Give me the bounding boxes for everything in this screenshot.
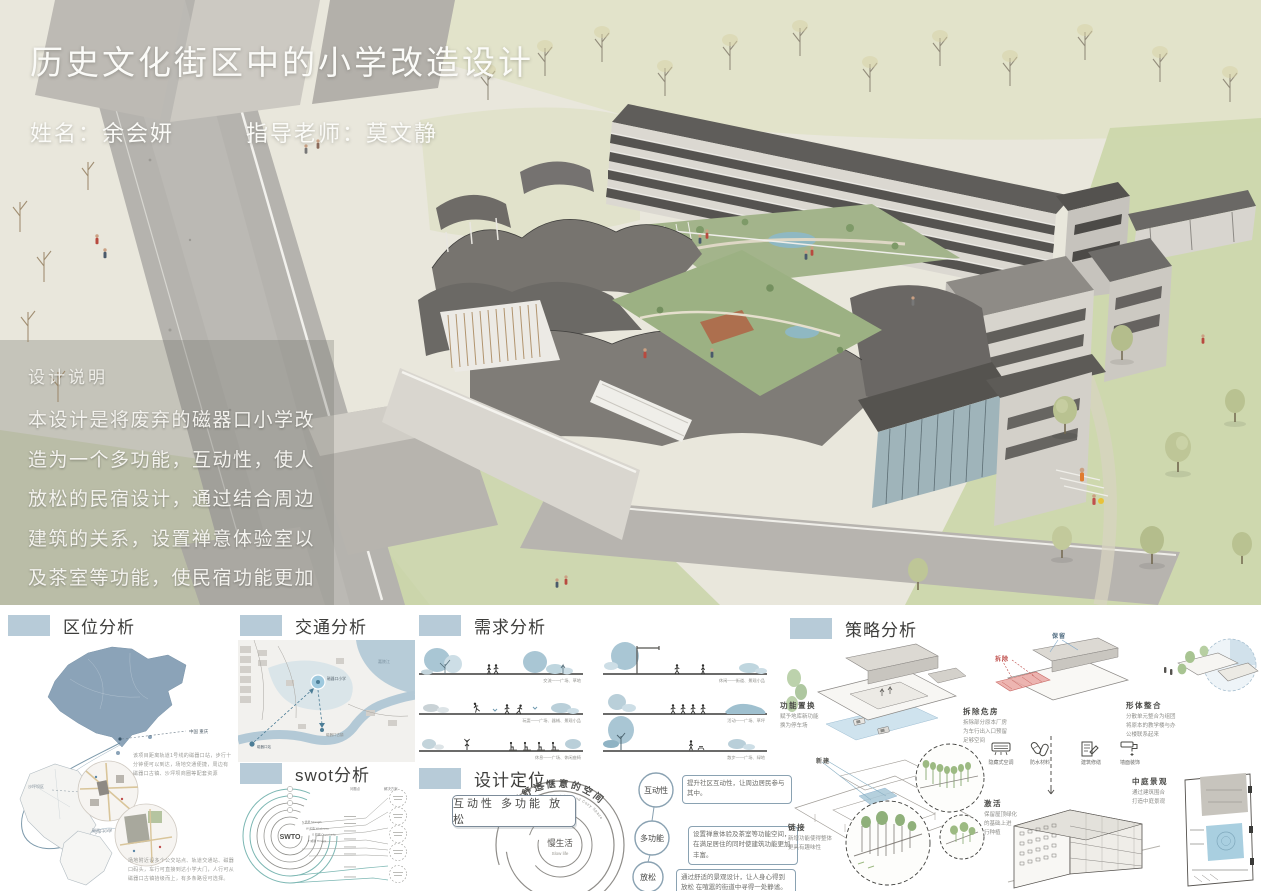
icon-item-waterproof: 防水材料	[1025, 741, 1055, 766]
strategy-step-text: 分散单元整合为组团 将原本的教学楼与办 公楼联系起来	[1126, 713, 1210, 740]
needs-caption: 活动——广场、草坪	[727, 717, 765, 724]
strategy-step-title: 功能置换	[780, 700, 852, 711]
needs-caption: 交流——广场、草地	[543, 677, 582, 684]
detail-circle-roof-planting	[916, 744, 984, 812]
needs-caption: 休息——广场、休闲座椅	[535, 754, 581, 761]
location-note-site: 场地附近设多个公交站点、轨道交通站、磁器口码头，车行可直接到达小学大门，人行可从…	[128, 857, 234, 884]
swot-center: SWTO	[280, 834, 301, 841]
swot-spiral-diagram: SWTO S 优势 Strength W 劣势 Weakness O 机遇 Op…	[238, 782, 418, 891]
header-chip	[240, 763, 282, 784]
poster-board: 历史文化街区中的小学改造设计 姓名：余会妍 指导老师：莫文静 设计说明 本设计是…	[0, 0, 1261, 891]
strategy-step-courtyard: 中庭景观 通过建筑围合 打造中庭景观	[1132, 776, 1206, 807]
strategy-step-link: 链接 新增功能使得整体 更具有趣味性	[788, 822, 868, 853]
header-chip	[419, 615, 461, 636]
bullet-label: 放松	[640, 872, 656, 882]
label-river: 嘉陵江	[378, 658, 390, 664]
strategy-step-text: 赋予地库新功能 换为停车场	[780, 713, 852, 731]
swot-col-header-2: 解决方案	[384, 786, 398, 791]
section-title: 需求分析	[474, 613, 546, 638]
building-repair-icon	[1081, 741, 1101, 757]
byline: 姓名：余会妍 指导老师：莫文静	[30, 116, 534, 148]
needs-caption: 散步——广场、绿地	[727, 754, 766, 761]
strategy-step-text: 保留屋顶绿化 的基础上进 行种植	[984, 811, 1048, 838]
strategy-step-function-swap: 功能置换 赋予地库新功能 换为停车场	[780, 700, 852, 731]
strategy-step-text: 通过建筑围合 打造中庭景观	[1132, 789, 1206, 807]
design-statement-body: 本设计是将废弃的磁器口小学改造为一个多功能，互动性，使人放松的民宿设计，通过结合…	[28, 401, 328, 605]
section-header-traffic: 交通分析	[240, 613, 367, 638]
poster-title: 历史文化街区中的小学改造设计	[30, 36, 534, 84]
icon-item-hidden-ac: 隐藏式空调	[986, 741, 1016, 766]
swot-arc-label: S 优势 Strength	[302, 820, 322, 824]
paint-roller-icon	[1120, 741, 1140, 757]
analysis-board: 区位分析 交通分析 需求分析 策略分析 swot分析 设计定位	[0, 605, 1261, 891]
diagram-demolition	[996, 638, 1128, 700]
positioning-center-en: Slow life	[552, 851, 569, 856]
detail-circle-terrace	[940, 815, 984, 859]
needs-caption: 休闲——街道、景观小品	[719, 677, 765, 684]
strategy-step-activate: 激活 保留屋顶绿化 的基础上进 行种植	[984, 798, 1048, 838]
swot-arc-label: O 机遇 Opportunity	[312, 833, 336, 837]
label-site: 磁器口小学	[92, 827, 112, 833]
advisor-name: 指导老师：莫文静	[246, 116, 438, 148]
positioning-keywords: 互动性 多功能 放松	[452, 795, 576, 827]
strategy-step-title: 中庭景观	[1132, 776, 1206, 787]
label-country: 中国 重庆	[189, 728, 209, 735]
strategy-step-title: 拆除危房	[963, 706, 1043, 717]
icon-label: 建筑修缮	[1081, 759, 1101, 766]
location-note-metro: 该项目距离轨道1号线的磁器口站，步行十分钟便可以到达，场地交通便捷，周边有磁器口…	[133, 752, 233, 779]
strategy-step-title: 链接	[788, 822, 868, 833]
section-header-location: 区位分析	[8, 613, 135, 638]
strategy-icons-row: 隐藏式空调 防水材料 建筑修缮	[986, 741, 1145, 766]
swot-arc-label: T 威胁 Threats	[308, 839, 327, 843]
strategy-step-title: 形体整合	[1126, 700, 1210, 711]
section-title: 区位分析	[63, 613, 135, 638]
title-block: 历史文化街区中的小学改造设计 姓名：余会妍 指导老师：莫文静	[30, 36, 534, 148]
positioning-center-cn: 慢生活	[547, 838, 573, 848]
needs-scenes-illustration: 交流——广场、草地 玩耍——广场、器械、景观小品 休息——广场、休闲座椅 休闲—…	[415, 638, 770, 762]
air-conditioner-icon	[991, 741, 1011, 757]
design-statement-heading: 设计说明	[28, 363, 328, 388]
icon-item-repair: 建筑修缮	[1076, 741, 1106, 766]
strategy-step-title: 激活	[984, 798, 1048, 809]
author-name: 姓名：余会妍	[30, 116, 174, 148]
diagram-massing-integration	[1164, 639, 1258, 691]
icon-label: 墙面装饰	[1120, 759, 1140, 766]
swot-col-header-1: 问题点	[350, 786, 361, 791]
icon-label: 防水材料	[1030, 759, 1050, 766]
icon-label: 隐藏式空调	[988, 759, 1013, 766]
bullet-label: 多功能	[640, 833, 664, 843]
strategy-step-text: 新增功能使得整体 更具有趣味性	[788, 835, 868, 853]
header-chip	[8, 615, 50, 636]
bullet-label: 互动性	[644, 785, 668, 795]
design-statement: 设计说明 本设计是将废弃的磁器口小学改造为一个多功能，互动性，使人放松的民宿设计…	[28, 363, 328, 605]
needs-caption: 玩耍——广场、器械、景观小品	[522, 717, 581, 724]
swot-arc-label: W 劣势 Weakness	[306, 827, 329, 831]
header-chip	[240, 615, 282, 636]
icon-item-wall-finish: 墙面装饰	[1115, 741, 1145, 766]
tag-keep: 保留	[1052, 631, 1066, 640]
hero-render: 历史文化街区中的小学改造设计 姓名：余会妍 指导老师：莫文静 设计说明 本设计是…	[0, 0, 1261, 605]
section-header-needs: 需求分析	[419, 613, 546, 638]
tag-new: 新建	[816, 756, 830, 765]
tag-demolish: 拆除	[995, 654, 1009, 663]
label-district: 沙坪坝区	[28, 783, 44, 789]
label-town: 磁器口古镇	[326, 732, 344, 737]
label-station: 磁器口站	[257, 744, 271, 749]
capsules-icon	[1030, 741, 1050, 757]
traffic-map-illustration: 磁器口小学 磁器口站 磁器口古镇 嘉陵江	[238, 640, 415, 762]
strategy-step-integration: 形体整合 分散单元整合为组团 将原本的教学楼与办 公楼联系起来	[1126, 700, 1210, 740]
section-title: 交通分析	[295, 613, 367, 638]
label-site: 磁器口小学	[327, 676, 346, 681]
